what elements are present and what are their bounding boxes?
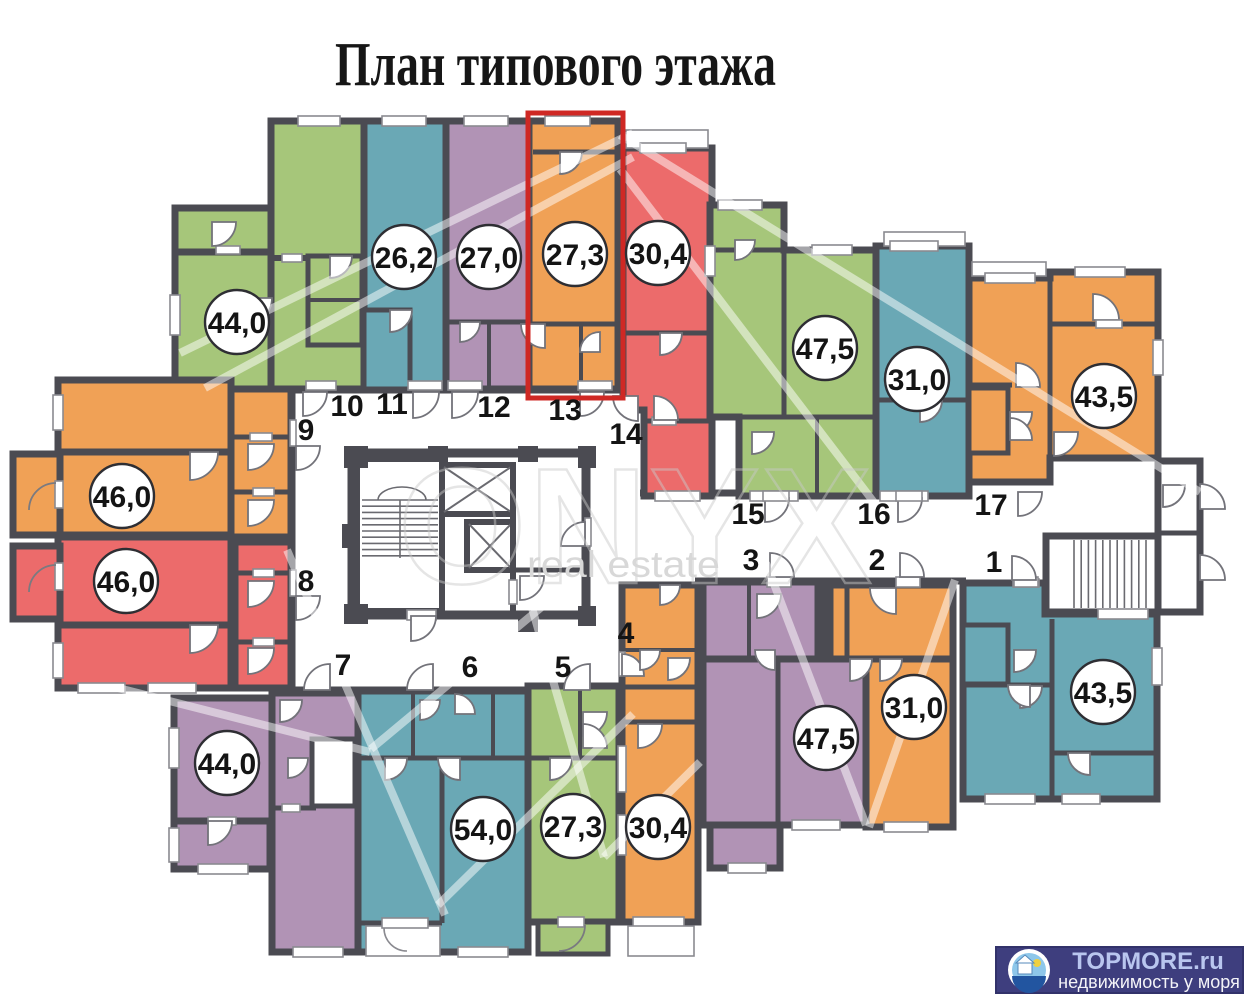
svg-text:47,5: 47,5	[797, 723, 855, 756]
svg-text:43,5: 43,5	[1075, 381, 1133, 414]
svg-text:43,5: 43,5	[1074, 677, 1132, 710]
svg-text:44,0: 44,0	[208, 307, 266, 340]
svg-text:54,0: 54,0	[454, 814, 512, 847]
svg-text:5: 5	[555, 651, 572, 684]
svg-text:7: 7	[335, 649, 352, 682]
svg-text:1: 1	[986, 546, 1003, 579]
svg-text:44,0: 44,0	[198, 748, 256, 781]
svg-text:46,0: 46,0	[93, 481, 151, 514]
svg-text:31,0: 31,0	[888, 364, 946, 397]
svg-text:real estate: real estate	[527, 544, 720, 585]
svg-text:11: 11	[376, 388, 408, 421]
svg-text:27,3: 27,3	[544, 811, 602, 844]
svg-text:15: 15	[731, 498, 764, 531]
svg-text:47,5: 47,5	[796, 333, 854, 366]
svg-text:31,0: 31,0	[885, 692, 943, 725]
svg-text:27,3: 27,3	[546, 239, 604, 272]
svg-text:TOPMORE.ru: TOPMORE.ru	[1072, 948, 1224, 975]
svg-text:10: 10	[330, 390, 363, 423]
svg-text:16: 16	[857, 498, 890, 531]
svg-text:4: 4	[618, 617, 635, 650]
svg-text:14: 14	[609, 418, 643, 451]
svg-text:недвижимость у моря: недвижимость у моря	[1058, 972, 1240, 992]
svg-text:13: 13	[548, 394, 581, 427]
svg-text:2: 2	[869, 544, 886, 577]
svg-text:17: 17	[974, 489, 1007, 522]
svg-text:27,0: 27,0	[460, 242, 518, 275]
svg-text:12: 12	[477, 391, 510, 424]
svg-text:3: 3	[743, 544, 760, 577]
svg-text:План типового этажа: План типового этажа	[335, 31, 776, 99]
svg-text:ONYX: ONYX	[398, 434, 874, 618]
svg-text:26,2: 26,2	[375, 242, 433, 275]
svg-text:9: 9	[298, 414, 315, 447]
svg-text:8: 8	[298, 565, 315, 598]
svg-text:6: 6	[462, 651, 479, 684]
svg-text:30,4: 30,4	[629, 812, 688, 845]
svg-text:46,0: 46,0	[97, 566, 155, 599]
svg-text:30,4: 30,4	[629, 238, 688, 271]
